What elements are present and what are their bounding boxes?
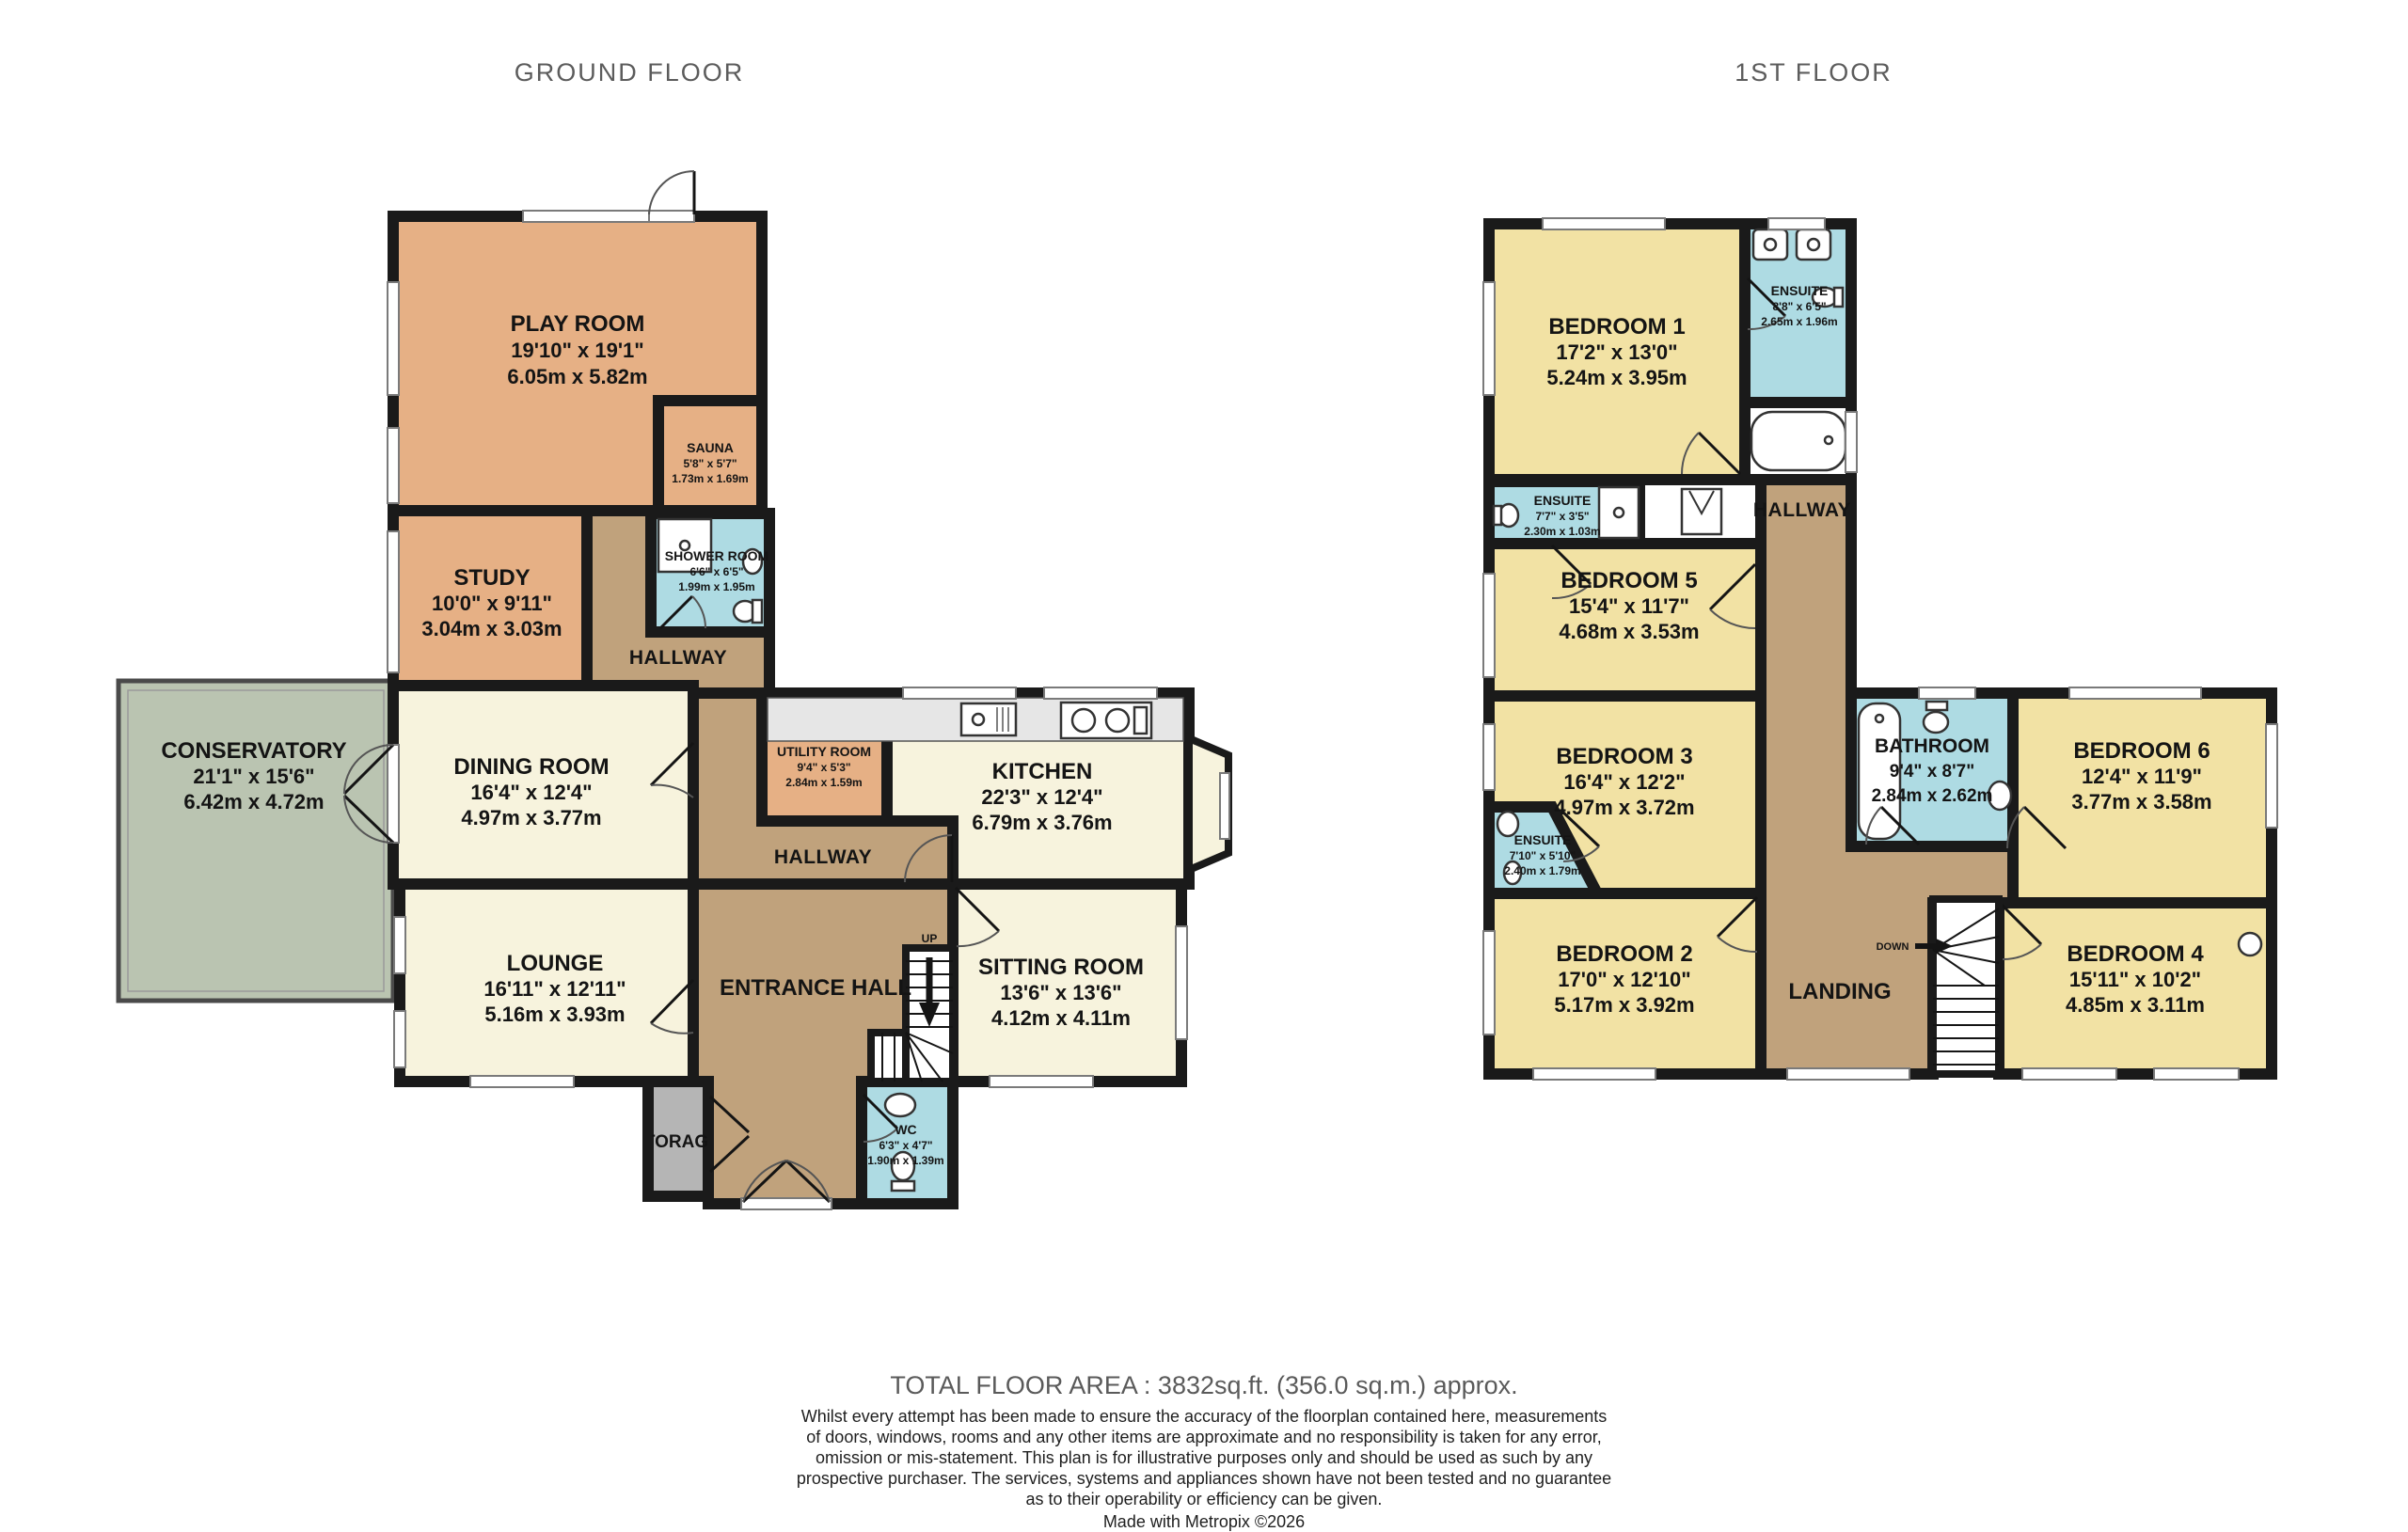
bedroom-4-imperial: 15'11" x 10'2" bbox=[2069, 968, 2201, 991]
window bbox=[394, 1011, 405, 1067]
lounge-metric: 5.16m x 3.93m bbox=[484, 1003, 625, 1026]
utility-room-metric: 2.84m x 1.59m bbox=[785, 776, 862, 789]
wardrobe-icon bbox=[1682, 489, 1721, 534]
window bbox=[990, 1076, 1093, 1087]
window bbox=[903, 687, 1016, 699]
shower-room-imperial: 6'6" x 6'5" bbox=[689, 565, 743, 578]
shower-room-label: SHOWER ROOM bbox=[665, 548, 768, 563]
door-play-room bbox=[649, 171, 694, 222]
window bbox=[1846, 412, 1857, 472]
floorplan-canvas: PLAY ROOM 19'10" x 19'1" 6.05m x 5.82m S… bbox=[0, 0, 2408, 1524]
window bbox=[388, 428, 399, 503]
window bbox=[523, 211, 655, 222]
kitchen-label: KITCHEN bbox=[992, 759, 1093, 784]
stairs-up-label: UP bbox=[922, 932, 938, 945]
window bbox=[1483, 931, 1495, 1034]
bathroom-imperial: 9'4" x 8'7" bbox=[1890, 762, 1974, 782]
ground-floor-plan: PLAY ROOM 19'10" x 19'1" 6.05m x 5.82m S… bbox=[119, 171, 1229, 1209]
hallway-upper-label: HALLWAY bbox=[629, 647, 727, 669]
bedroom-3-imperial: 16'4" x 12'2" bbox=[1563, 770, 1685, 794]
play-room-imperial: 19'10" x 19'1" bbox=[511, 339, 643, 362]
ensuite-3-imperial: 7'10" x 5'10" bbox=[1510, 849, 1576, 862]
hob-icon bbox=[1061, 703, 1151, 738]
sitting-room-label: SITTING ROOM bbox=[978, 955, 1144, 980]
lounge-imperial: 16'11" x 12'11" bbox=[483, 977, 626, 1001]
sauna-imperial: 5'8" x 5'7" bbox=[683, 457, 737, 470]
bedroom-5-metric: 4.68m x 3.53m bbox=[1559, 620, 1699, 643]
sitting-room-metric: 4.12m x 4.11m bbox=[991, 1006, 1131, 1030]
bedroom-1-metric: 5.24m x 3.95m bbox=[1546, 366, 1687, 389]
stairs-down-label: DOWN bbox=[1877, 941, 1909, 953]
window bbox=[1176, 926, 1187, 1039]
bedroom-1-imperial: 17'2" x 13'0" bbox=[1556, 340, 1677, 364]
window bbox=[1483, 574, 1495, 677]
bedroom-6-imperial: 12'4" x 11'9" bbox=[2082, 765, 2202, 788]
window bbox=[2022, 1068, 2116, 1080]
window bbox=[1044, 687, 1157, 699]
wc-imperial: 6'3" x 4'7" bbox=[879, 1139, 932, 1152]
ensuite-5-imperial: 7'7" x 3'5" bbox=[1535, 510, 1589, 523]
window bbox=[1483, 282, 1495, 395]
bathroom-metric: 2.84m x 2.62m bbox=[1872, 786, 1993, 806]
shower-stall-icon bbox=[1599, 487, 1639, 538]
lounge-label: LOUNGE bbox=[507, 951, 604, 976]
sauna-metric: 1.73m x 1.69m bbox=[672, 472, 748, 485]
total-floor-area: TOTAL FLOOR AREA : 3832sq.ft. (356.0 sq.… bbox=[0, 1371, 2408, 1400]
ensuite-5-label: ENSUITE bbox=[1534, 493, 1592, 508]
credit: Made with Metropix ©2026 bbox=[0, 1512, 2408, 1532]
window bbox=[1483, 724, 1495, 790]
window bbox=[2266, 724, 2277, 828]
dining-room-metric: 4.97m x 3.77m bbox=[461, 806, 601, 829]
bedroom-2-imperial: 17'0" x 12'10" bbox=[1558, 968, 1690, 991]
window bbox=[2069, 687, 2201, 699]
ensuite-3-label: ENSUITE bbox=[1514, 832, 1572, 847]
bedroom-5-imperial: 15'4" x 11'7" bbox=[1569, 594, 1689, 618]
sink-icon bbox=[2239, 933, 2261, 956]
disclaimer-line: prospective purchaser. The services, sys… bbox=[0, 1469, 2408, 1490]
ensuite-3-metric: 2.40m x 1.79m bbox=[1504, 864, 1580, 877]
conservatory-label: CONSERVATORY bbox=[161, 738, 346, 764]
shower-room-metric: 1.99m x 1.95m bbox=[678, 580, 754, 593]
window bbox=[470, 1076, 574, 1087]
entrance-hall-label: ENTRANCE HALL bbox=[720, 975, 911, 1001]
room-conservatory bbox=[119, 681, 393, 1001]
wc-label: WC bbox=[895, 1122, 916, 1137]
hallway-middle-label: HALLWAY bbox=[774, 846, 872, 868]
study-label: STUDY bbox=[453, 565, 530, 591]
dining-room-imperial: 16'4" x 12'4" bbox=[470, 781, 592, 804]
window bbox=[1543, 218, 1665, 229]
disclaimer-line: omission or mis-statement. This plan is … bbox=[0, 1448, 2408, 1469]
bedroom-3-metric: 4.97m x 3.72m bbox=[1554, 796, 1694, 819]
disclaimer-line: Whilst every attempt has been made to en… bbox=[0, 1407, 2408, 1428]
landing-label: LANDING bbox=[1788, 979, 1891, 1004]
window bbox=[1919, 687, 1975, 699]
kitchen-imperial: 22'3" x 12'4" bbox=[981, 785, 1102, 809]
sink-icon bbox=[885, 1094, 915, 1116]
bedroom-1-label: BEDROOM 1 bbox=[1548, 314, 1685, 340]
window bbox=[394, 917, 405, 973]
sitting-room-imperial: 13'6" x 13'6" bbox=[1000, 981, 1121, 1004]
ensuite-1-label: ENSUITE bbox=[1771, 283, 1829, 298]
wc-metric: 1.90m x 1.39m bbox=[867, 1154, 943, 1167]
dining-room-label: DINING ROOM bbox=[453, 754, 609, 780]
bedroom-3-label: BEDROOM 3 bbox=[1556, 744, 1692, 769]
disclaimer: Whilst every attempt has been made to en… bbox=[0, 1407, 2408, 1510]
hallway-first-label: HALLWAY bbox=[1753, 499, 1851, 521]
play-room-label: PLAY ROOM bbox=[511, 311, 645, 337]
study-metric: 3.04m x 3.03m bbox=[421, 617, 562, 640]
window bbox=[1787, 1068, 1909, 1080]
bathroom-label: BATHROOM bbox=[1875, 735, 1989, 757]
toilet-icon bbox=[1924, 702, 1948, 733]
bedroom-6-label: BEDROOM 6 bbox=[2073, 738, 2210, 764]
utility-room-imperial: 9'4" x 5'3" bbox=[797, 761, 850, 774]
sink-icon bbox=[1797, 229, 1830, 260]
ensuite-1-metric: 2.65m x 1.96m bbox=[1761, 315, 1837, 328]
sink-icon bbox=[1753, 229, 1787, 260]
play-room-metric: 6.05m x 5.82m bbox=[507, 365, 647, 388]
bath-icon bbox=[1751, 412, 1846, 470]
kitchen-metric: 6.79m x 3.76m bbox=[972, 811, 1112, 834]
bedroom-2-metric: 5.17m x 3.92m bbox=[1554, 993, 1694, 1017]
window bbox=[1768, 218, 1825, 229]
sink-icon bbox=[961, 703, 1016, 735]
bedroom-6-metric: 3.77m x 3.58m bbox=[2071, 790, 2211, 813]
window bbox=[388, 282, 399, 395]
ensuite-1-imperial: 8'8" x 6'5" bbox=[1772, 300, 1826, 313]
sauna-label: SAUNA bbox=[687, 440, 734, 455]
toilet-icon bbox=[734, 600, 762, 623]
shower-tray-icon bbox=[658, 519, 711, 572]
bedroom-4-label: BEDROOM 4 bbox=[2067, 941, 2204, 967]
window bbox=[388, 531, 399, 672]
window bbox=[2154, 1068, 2239, 1080]
bedroom-2-label: BEDROOM 2 bbox=[1556, 941, 1692, 967]
disclaimer-line: as to their operability or efficiency ca… bbox=[0, 1490, 2408, 1510]
window bbox=[1533, 1068, 1655, 1080]
bedroom-5-label: BEDROOM 5 bbox=[1560, 568, 1697, 593]
first-floor-plan: BEDROOM 1 17'2" x 13'0" 5.24m x 3.95m EN… bbox=[1483, 218, 2277, 1080]
conservatory-metric: 6.42m x 4.72m bbox=[183, 790, 324, 813]
bedroom-4-metric: 4.85m x 3.11m bbox=[2066, 993, 2205, 1017]
kitchen-counter bbox=[768, 698, 1183, 741]
study-imperial: 10'0" x 9'11" bbox=[432, 592, 552, 615]
window bbox=[1220, 773, 1229, 839]
room-sauna bbox=[658, 401, 762, 511]
utility-room-label: UTILITY ROOM bbox=[777, 744, 871, 759]
toilet-icon bbox=[1494, 504, 1518, 527]
conservatory-imperial: 21'1" x 15'6" bbox=[193, 765, 314, 788]
disclaimer-line: of doors, windows, rooms and any other i… bbox=[0, 1428, 2408, 1448]
ensuite-5-metric: 2.30m x 1.03m bbox=[1524, 525, 1600, 538]
